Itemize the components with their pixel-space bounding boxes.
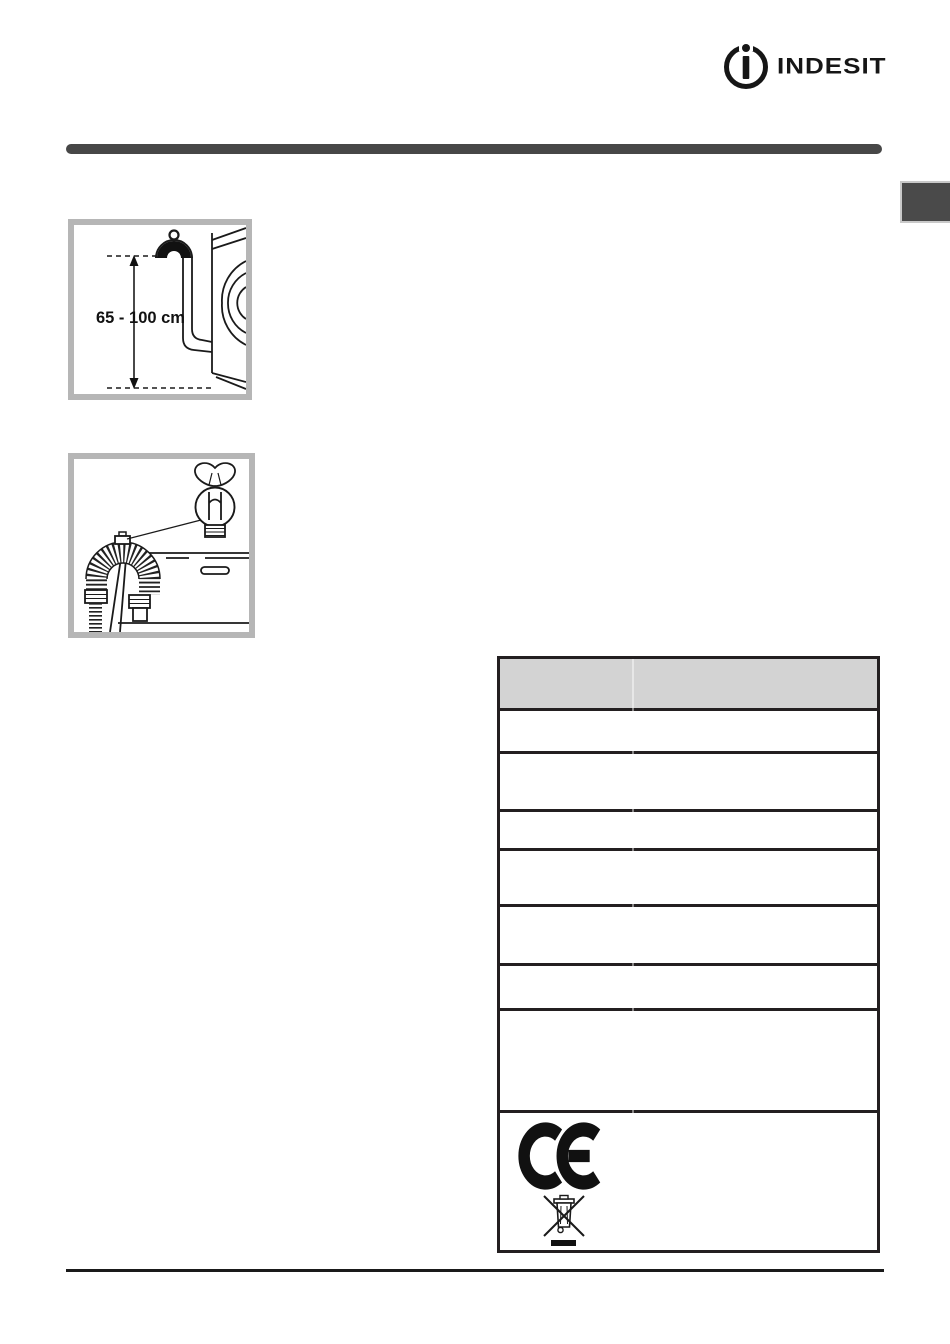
table-row <box>500 966 877 1011</box>
ce-mark-icon <box>518 1121 608 1191</box>
table-row-conformity-marks <box>500 1113 877 1250</box>
section-divider-bar <box>66 144 882 154</box>
table-row <box>500 851 877 907</box>
height-measurement-label: 65 - 100 cm <box>96 309 185 327</box>
table-header-row <box>500 659 877 711</box>
page-edge-tab <box>900 181 950 223</box>
circle-i-icon <box>723 42 769 90</box>
weee-crossed-bin-icon <box>540 1189 590 1247</box>
table-row <box>500 907 877 966</box>
figure-drain-hose-height: 65 - 100 cm <box>68 219 252 400</box>
table-row <box>500 711 877 754</box>
table-row <box>500 812 877 851</box>
indesit-logo: INDESIT <box>723 42 887 90</box>
manual-page: INDESIT <box>0 0 950 1344</box>
figure-drain-hose-sink <box>68 453 255 638</box>
indesit-logo-text: INDESIT <box>777 45 887 86</box>
drain-hose-height-drawing: 65 - 100 cm <box>74 225 246 394</box>
drain-hose-sink-drawing <box>74 459 249 632</box>
footer-rule <box>66 1269 884 1272</box>
technical-data-table <box>497 656 880 1253</box>
table-row <box>500 1011 877 1113</box>
table-row <box>500 754 877 812</box>
